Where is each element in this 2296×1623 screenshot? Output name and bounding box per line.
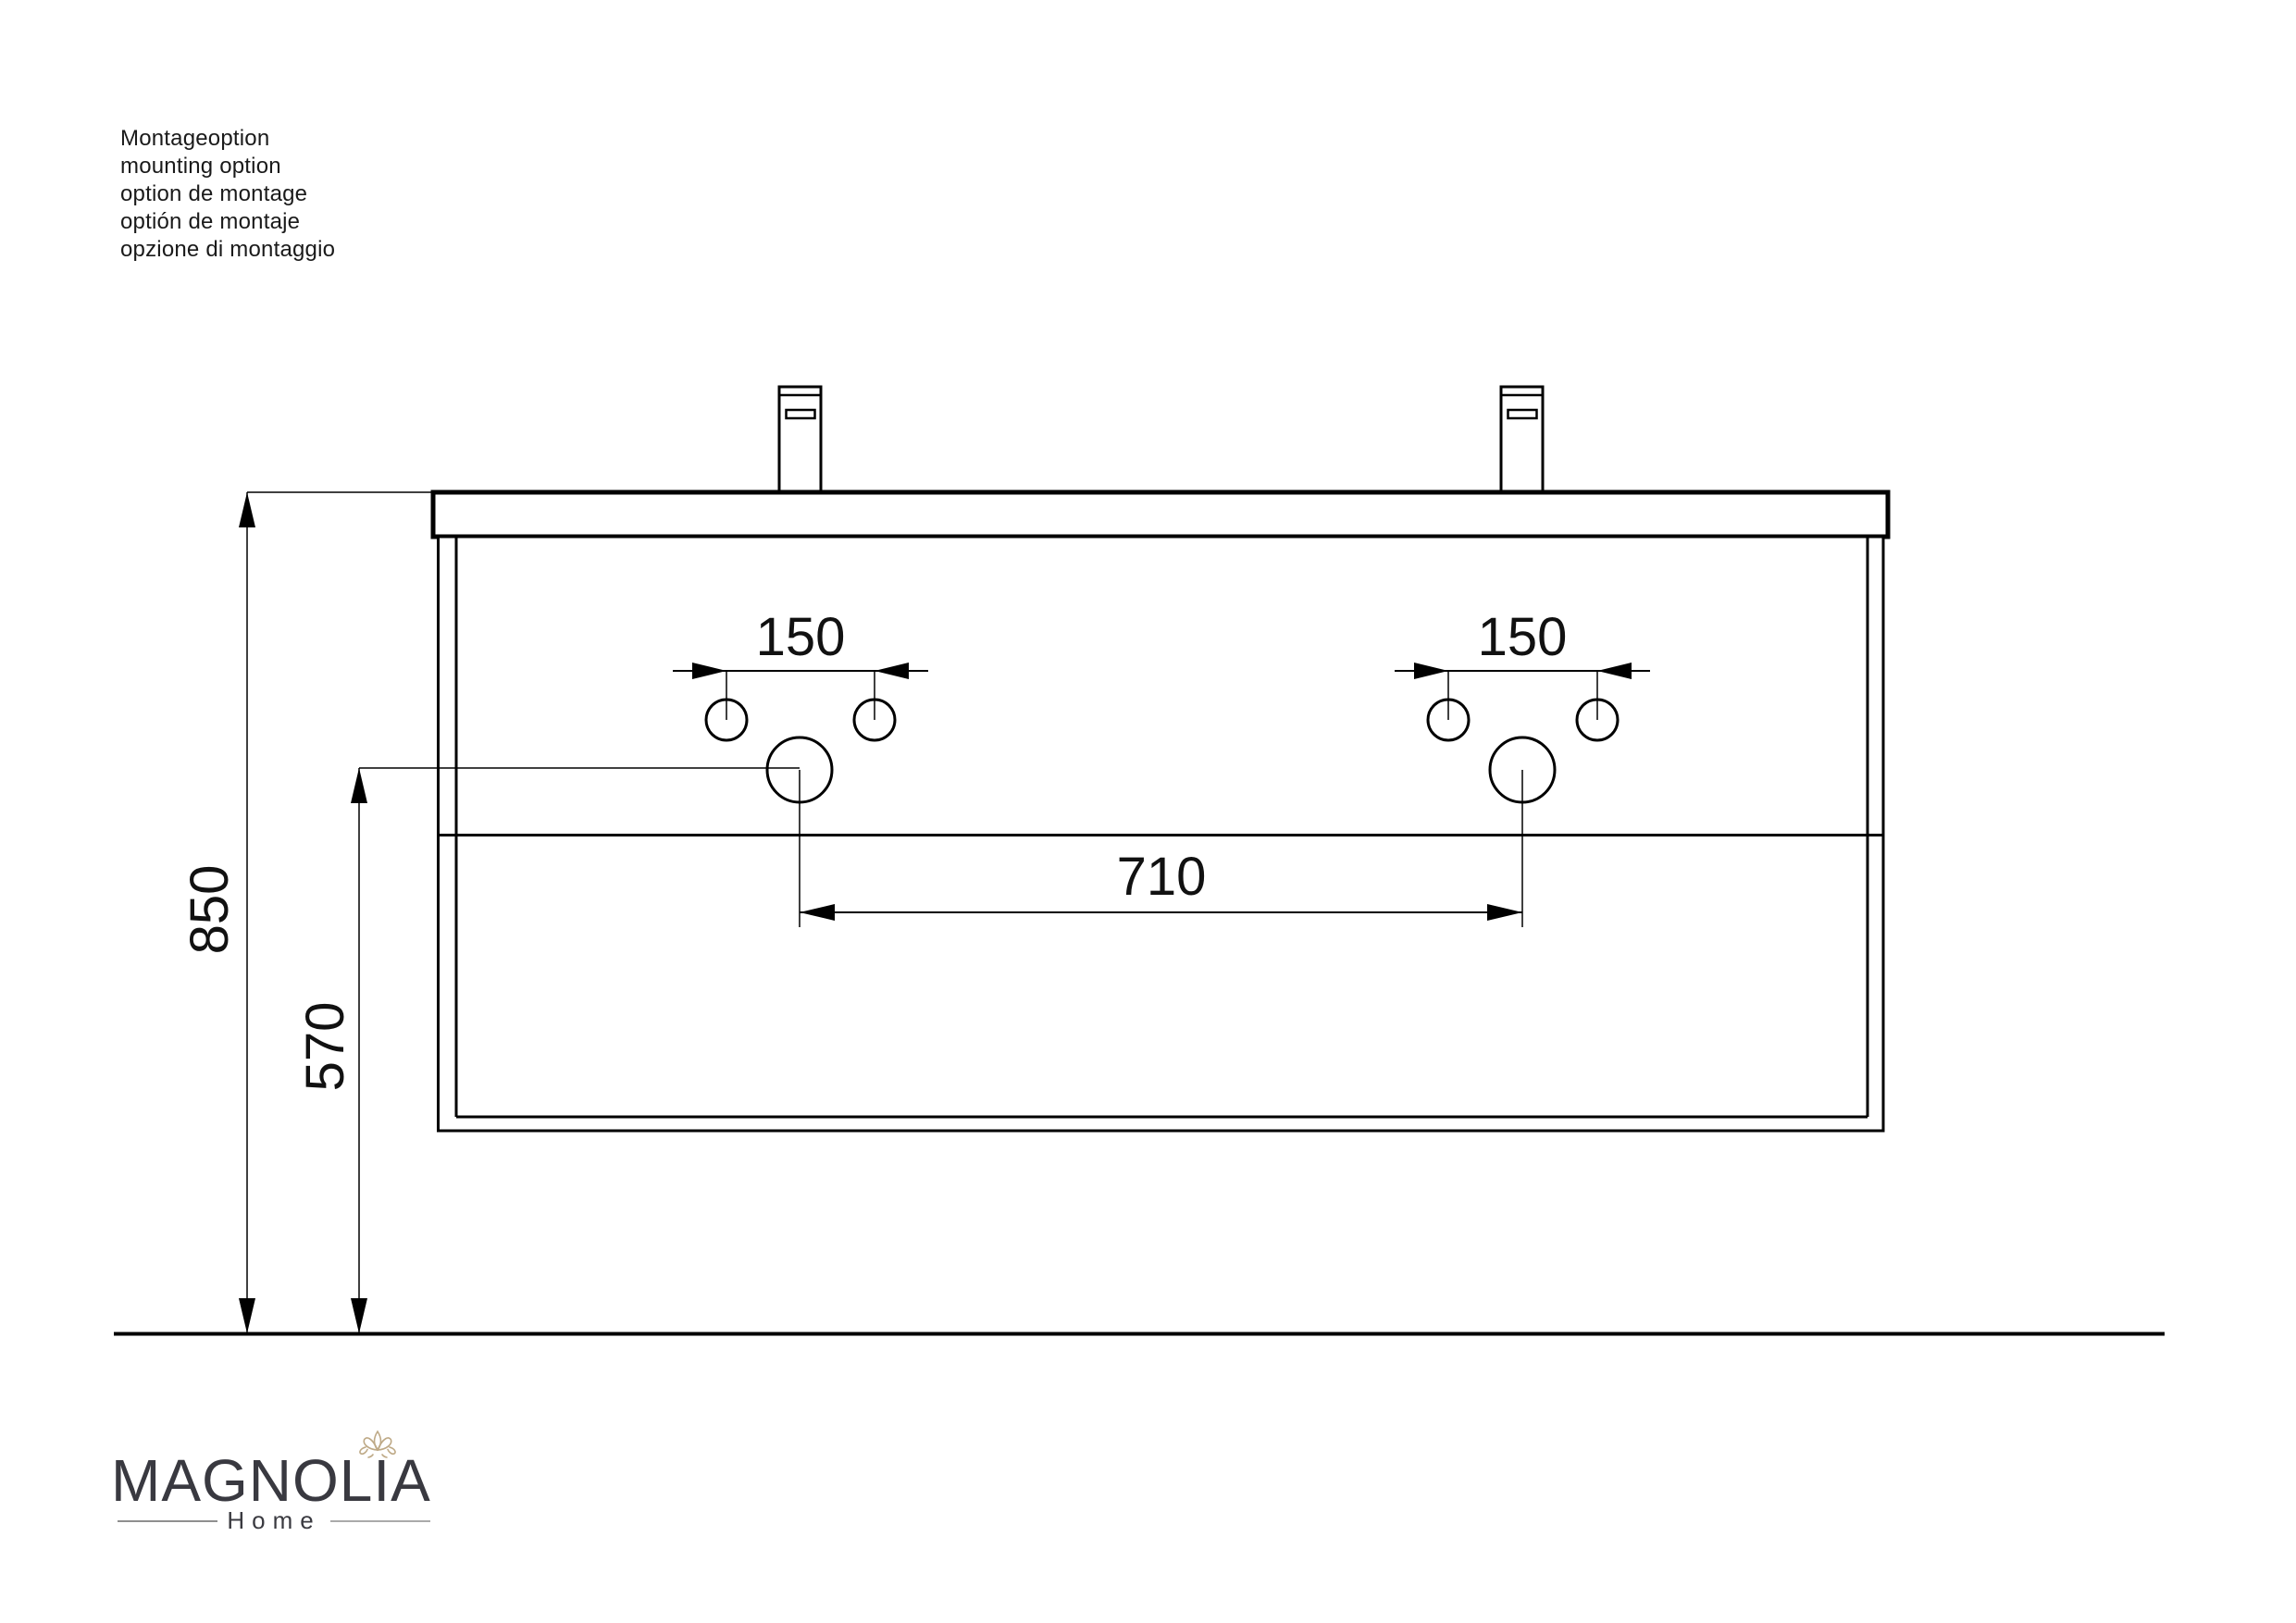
faucet-right [1501,387,1543,493]
dim-570-label: 570 [295,1002,355,1092]
dim-850-label: 850 [180,865,240,955]
page: { "notes": { "lines": [ "Montageoption",… [0,0,2296,1623]
dim-150-right-label: 150 [1478,607,1568,667]
lotus-right-leaf [388,1447,395,1454]
brand-subtitle: Home [217,1506,329,1535]
dim-150-left-label: 150 [756,607,846,667]
lotus-left-leaf [360,1447,367,1454]
countertop-outline [433,492,1888,537]
faucet-right-slot [1508,410,1537,418]
dim-850-arrow-bottom [239,1298,255,1333]
lotus-icon [354,1429,401,1462]
lotus-left-dash [368,1455,373,1457]
faucet-left-body [779,387,821,493]
faucet-left [779,387,821,493]
dim-850: 850 [180,492,433,1333]
dim-570-arrow-bottom [351,1298,367,1333]
faucet-right-body [1501,387,1543,493]
subtitle-rule-left [118,1520,217,1522]
dim-570-arrow-top [351,768,367,803]
dim-710-label: 710 [1117,847,1207,907]
vanity-technical-drawing: 150 150 710 850 570 [0,0,2296,1623]
brand-subtitle-row: Home [118,1506,430,1535]
lotus-center-petal [375,1431,381,1450]
subtitle-rule-right [330,1520,430,1522]
dim-850-arrow-top [239,492,255,527]
faucet-left-slot [787,410,815,418]
lotus-right-dash [382,1455,387,1457]
